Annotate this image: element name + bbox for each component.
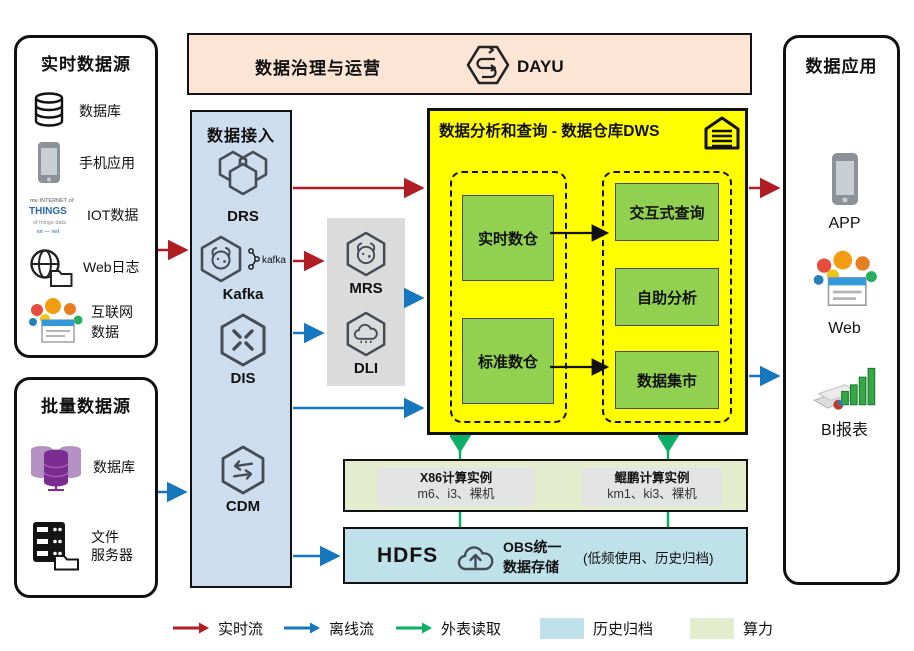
greenbox-label: 交互式查询 xyxy=(629,202,704,223)
legend-compute-swatch xyxy=(690,618,734,639)
governance-title: 数据治理与运营 xyxy=(255,54,381,79)
svg-text:iot — net: iot — net xyxy=(37,229,59,235)
warehouse-icon xyxy=(702,115,742,151)
instance-name: X86计算实例 xyxy=(377,471,535,487)
source-item-internet: 互联网 数据 xyxy=(17,293,155,351)
hdfs-label: HDFS xyxy=(377,544,438,568)
app-item-web: Web xyxy=(786,248,903,338)
storage-note: (低频使用、历史归档) xyxy=(583,547,714,567)
greenbox-label: 标准数仓 xyxy=(478,351,538,372)
ingestion-item-kafka: kafka Kafka xyxy=(192,234,294,303)
source-label: 文件 服务器 xyxy=(91,528,133,564)
app-label: APP xyxy=(786,215,903,233)
x86-instances-chip: X86计算实例 m6、i3、裸机 xyxy=(377,468,535,506)
compute-panel: X86计算实例 m6、i3、裸机 鲲鹏计算实例 km1、ki3、裸机 xyxy=(343,459,748,512)
processing-panel: MRS DLI xyxy=(327,218,405,386)
legend-archive: 历史归档 xyxy=(540,616,653,640)
source-label: Web日志 xyxy=(83,257,140,277)
processing-item-dli: DLI xyxy=(327,310,405,377)
storage-panel: HDFS OBS统一 数据存储 (低频使用、历史归档) xyxy=(343,527,748,584)
greenbox-label: 自助分析 xyxy=(637,287,697,308)
legend-label: 外表读取 xyxy=(441,618,501,639)
realtime-sources-title: 实时数据源 xyxy=(17,50,155,75)
batch-sources-panel: 批量数据源 数据库 xyxy=(14,377,158,598)
source-item-iot: me INTERNET of THINGS of things data iot… xyxy=(17,189,155,241)
web-collage-icon xyxy=(812,248,878,314)
ingestion-item-cdm: CDM xyxy=(192,444,294,515)
dws-self-service-analysis: 自助分析 xyxy=(615,268,719,326)
dws-title: 数据分析和查询 - 数据仓库DWS xyxy=(439,119,659,141)
applications-panel: 数据应用 APP Web xyxy=(783,35,900,585)
internet-icon xyxy=(27,298,83,346)
dws-data-mart: 数据集市 xyxy=(615,351,719,409)
ingestion-item-drs: DRS xyxy=(192,148,294,225)
kafka-badge-icon: kafka xyxy=(246,246,288,272)
realtime-sources-panel: 实时数据源 数据库 手机应用 me INTERNET of THINGS of … xyxy=(14,35,158,358)
kafka-badge-text: kafka xyxy=(262,255,286,266)
dis-icon xyxy=(217,312,269,368)
app-label: BI报表 xyxy=(786,416,903,440)
ingestion-label: DIS xyxy=(192,370,294,387)
legend-label: 算力 xyxy=(743,618,773,639)
architecture-diagram: 数据治理与运营 DAYU 实时数据源 数据库 手机应用 xyxy=(0,0,914,651)
ingestion-label: CDM xyxy=(192,498,294,515)
dws-panel: 数据分析和查询 - 数据仓库DWS 实时数仓 标准数仓 交互式查询 自助分析 数… xyxy=(427,108,748,435)
dli-icon xyxy=(344,310,388,358)
mrs-icon xyxy=(344,230,388,278)
source-label: 数据库 xyxy=(93,457,135,477)
greenbox-label: 数据集市 xyxy=(637,370,697,391)
obs-cloud-icon xyxy=(455,540,497,574)
dws-standard-warehouse: 标准数仓 xyxy=(462,318,554,404)
ingestion-title: 数据接入 xyxy=(192,122,290,146)
ingestion-label: Kafka xyxy=(192,286,294,303)
instance-name: 鲲鹏计算实例 xyxy=(582,471,722,487)
app-item-bi: BI报表 xyxy=(786,360,903,440)
processing-item-mrs: MRS xyxy=(327,230,405,297)
iot-icon: me INTERNET of THINGS of things data iot… xyxy=(27,192,79,238)
greenbox-label: 实时数仓 xyxy=(478,228,538,249)
legend-label: 实时流 xyxy=(218,618,263,639)
cdm-icon xyxy=(219,444,267,496)
instance-spec: km1、ki3、裸机 xyxy=(582,487,722,503)
legend-compute-power: 算力 xyxy=(690,616,773,640)
applications-title: 数据应用 xyxy=(786,52,897,77)
app-phone-icon xyxy=(828,151,862,209)
dayu-icon xyxy=(465,44,511,86)
source-item-mobile: 手机应用 xyxy=(17,137,155,189)
ingestion-panel: 数据接入 DRS xyxy=(190,110,292,588)
governance-banner: 数据治理与运营 DAYU xyxy=(187,33,752,95)
dws-realtime-warehouse: 实时数仓 xyxy=(462,195,554,281)
legend-label: 离线流 xyxy=(329,618,374,639)
processing-label: DLI xyxy=(327,360,405,377)
source-label: 互联网 数据 xyxy=(91,302,133,342)
ingestion-label: DRS xyxy=(192,208,294,225)
legend-archive-swatch xyxy=(540,618,584,639)
app-label: Web xyxy=(786,320,903,338)
database-icon xyxy=(27,90,71,132)
source-label: 数据库 xyxy=(79,101,121,121)
legend-offline-flow: 离线流 xyxy=(284,616,374,640)
file-server-icon xyxy=(27,520,83,572)
dws-interactive-query: 交互式查询 xyxy=(615,183,719,241)
legend-red-arrow-icon xyxy=(173,622,209,634)
svg-text:me INTERNET of: me INTERNET of xyxy=(30,198,74,204)
legend-label: 历史归档 xyxy=(593,618,653,639)
source-item-database: 数据库 xyxy=(17,85,155,137)
database-purple-icon xyxy=(27,438,85,496)
drs-icon xyxy=(214,148,272,206)
source-item-weblog: Web日志 xyxy=(17,241,155,293)
legend-realtime-flow: 实时流 xyxy=(173,616,263,640)
instance-spec: m6、i3、裸机 xyxy=(377,487,535,503)
kafka-icon xyxy=(198,234,244,284)
source-item-file-server: 文件 服务器 xyxy=(17,509,155,583)
processing-label: MRS xyxy=(327,280,405,297)
dayu-label: DAYU xyxy=(517,57,564,77)
weblog-icon xyxy=(27,245,75,289)
batch-sources-title: 批量数据源 xyxy=(17,392,155,417)
legend-external-read: 外表读取 xyxy=(396,616,501,640)
svg-text:of things data: of things data xyxy=(33,220,67,226)
svg-text:THINGS: THINGS xyxy=(29,206,67,217)
obs-label: OBS统一 数据存储 xyxy=(503,538,561,577)
source-label: 手机应用 xyxy=(79,153,135,173)
legend-blue-arrow-icon xyxy=(284,622,320,634)
bi-report-icon xyxy=(812,360,878,412)
source-item-batch-database: 数据库 xyxy=(17,425,155,509)
ingestion-item-dis: DIS xyxy=(192,312,294,387)
app-item-app: APP xyxy=(786,151,903,233)
source-label: IOT数据 xyxy=(87,205,138,225)
kunpeng-instances-chip: 鲲鹏计算实例 km1、ki3、裸机 xyxy=(582,468,722,506)
mobile-icon xyxy=(27,140,71,186)
legend-green-arrow-icon xyxy=(396,622,432,634)
